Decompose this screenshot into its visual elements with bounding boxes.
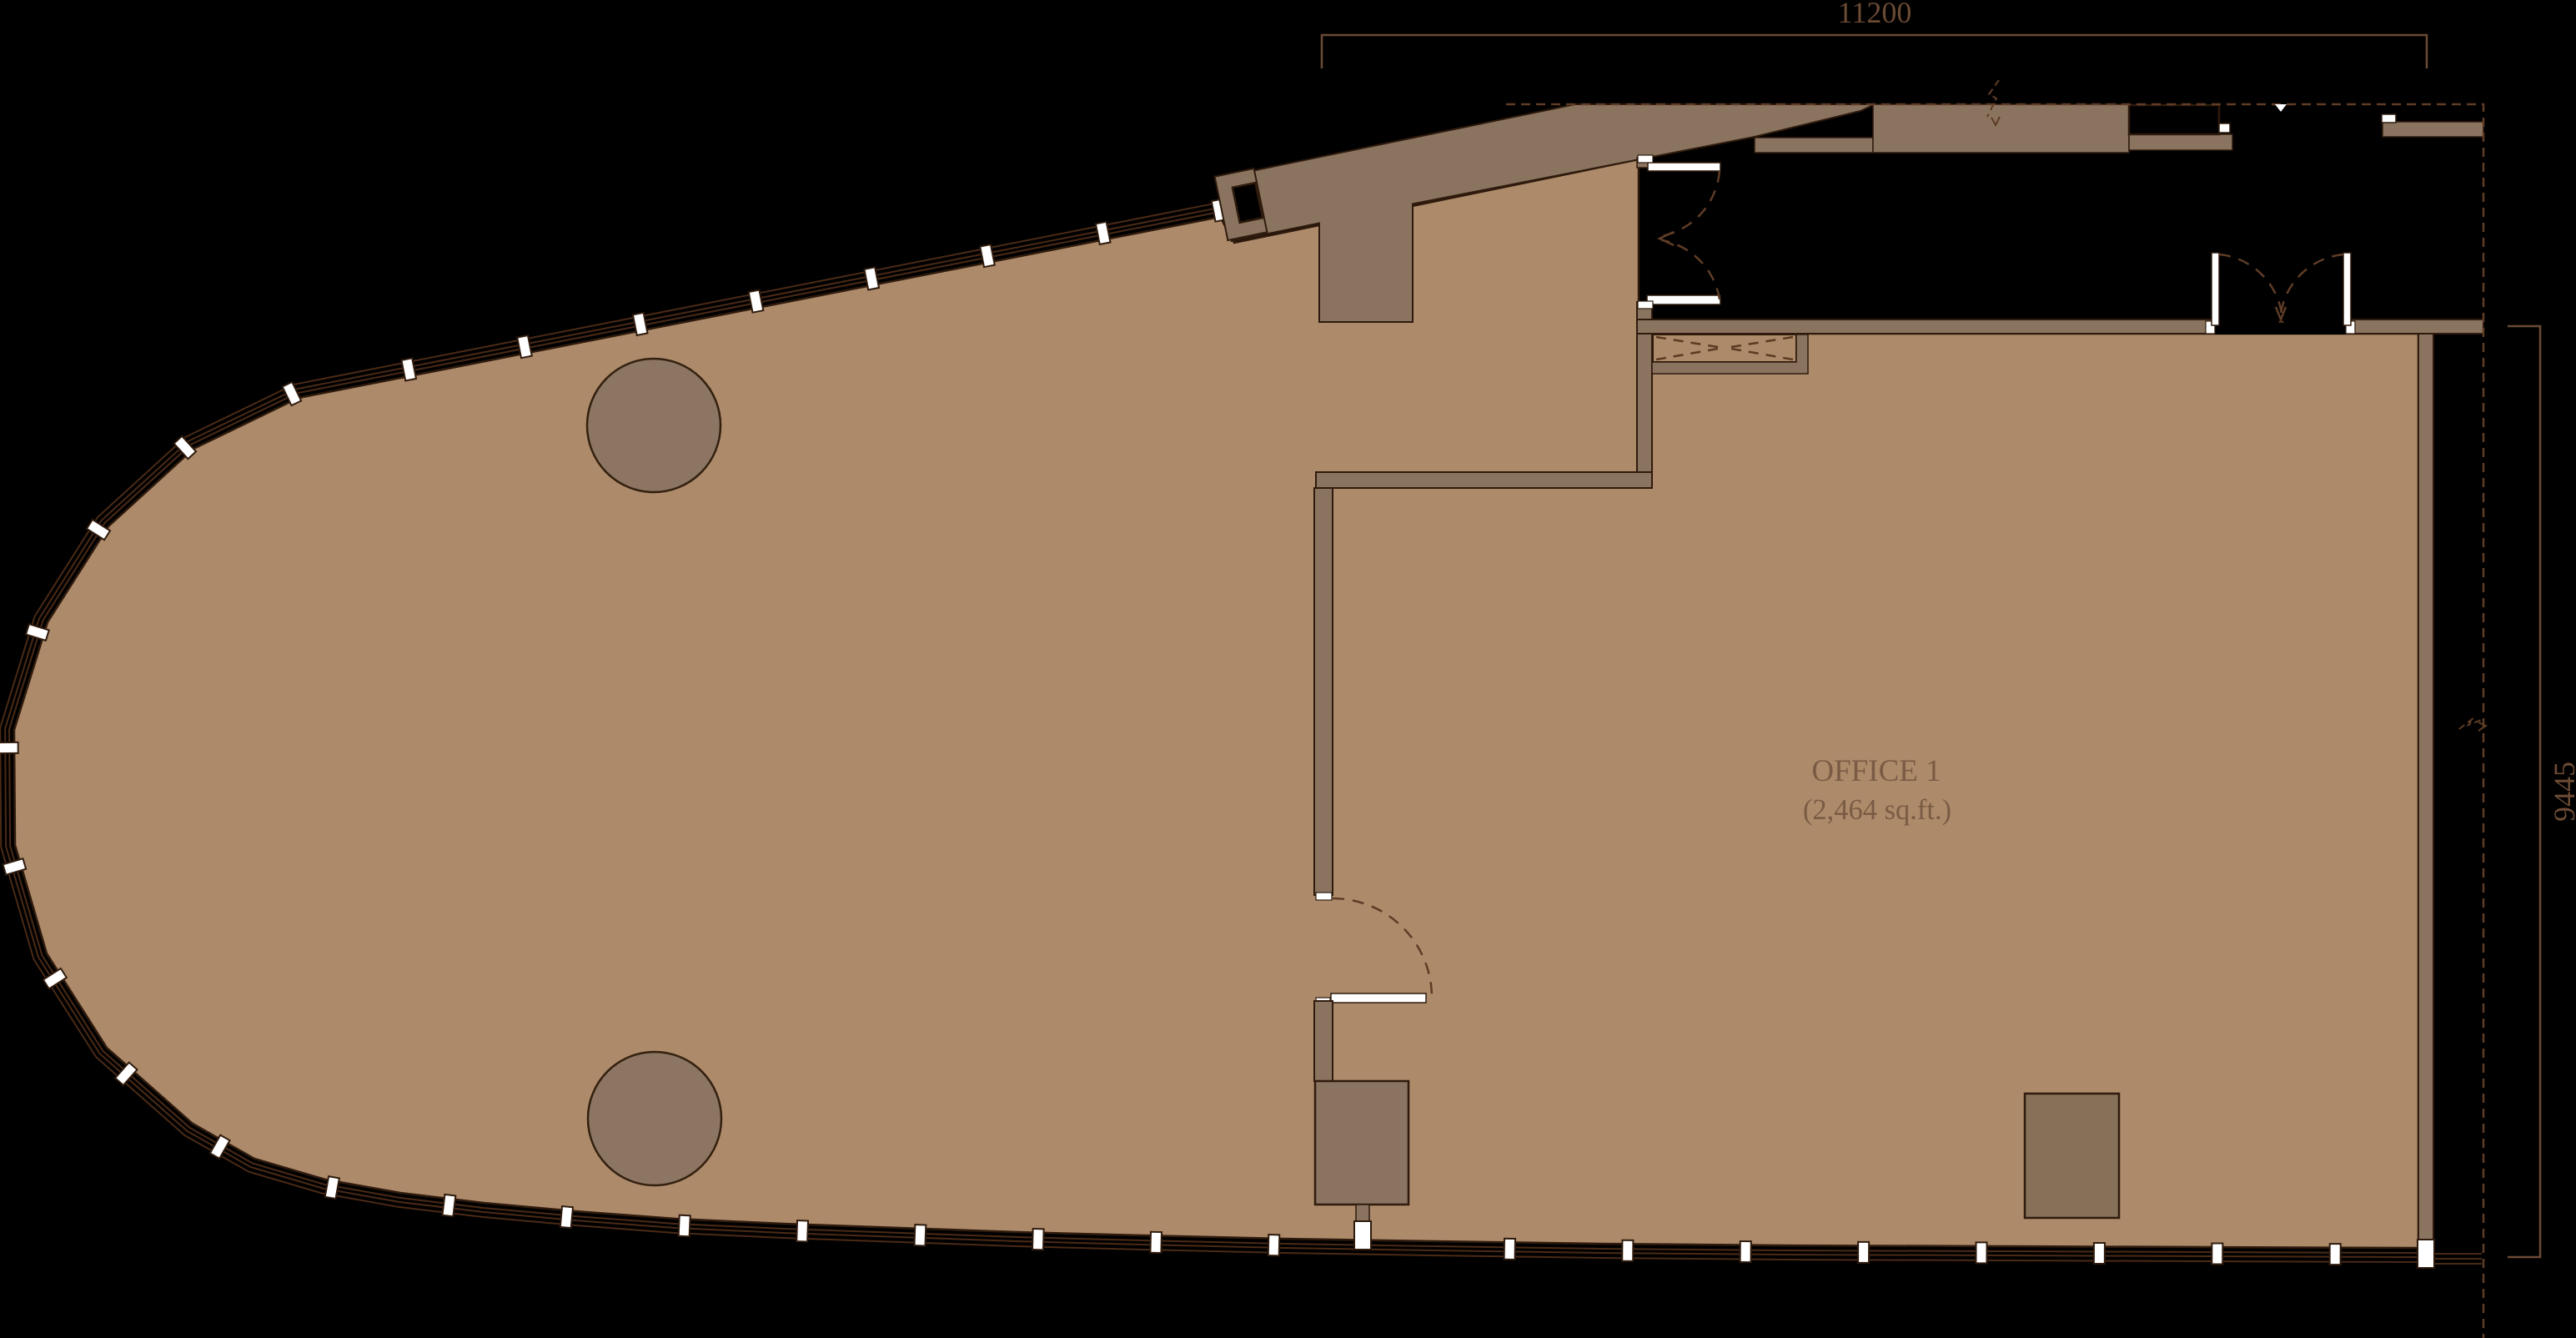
svg-text:9445: 9445 — [2548, 762, 2576, 822]
svg-text:OFFICE 1: OFFICE 1 — [1811, 754, 1941, 788]
svg-text:(2,464 sq.ft.): (2,464 sq.ft.) — [1803, 794, 1951, 826]
svg-text:11200: 11200 — [1838, 0, 1912, 29]
